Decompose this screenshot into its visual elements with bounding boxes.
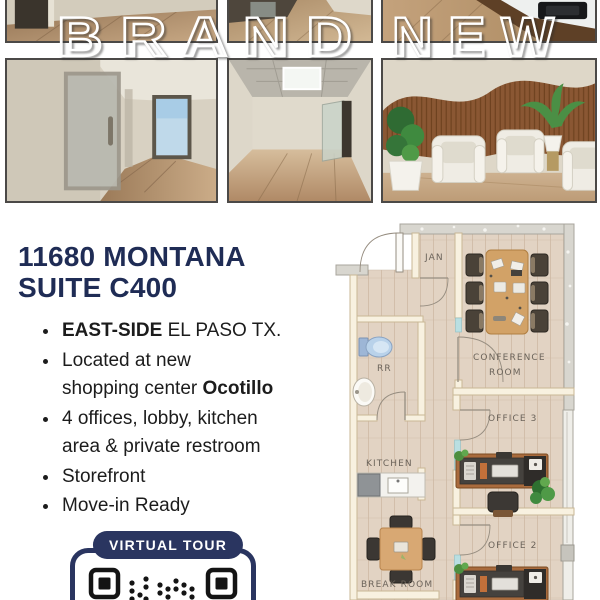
label-jan: JAN [424, 253, 444, 263]
flyer-page: B R A N D N E W 11680 MONTANA SUITE C400… [0, 0, 600, 600]
label-conference-2: ROOM [489, 368, 522, 378]
label-kitchen: KITCHEN [366, 459, 413, 469]
listing-details: 11680 MONTANA SUITE C400 EAST-SIDE EL PA… [18, 241, 323, 522]
bullet-layout-line1: 4 offices, lobby, kitchen [62, 408, 258, 429]
photo-office-room [227, 58, 373, 203]
qr-dots [129, 576, 194, 600]
photo-hall-glass-door [227, 0, 373, 43]
label-conference-1: CONFERENCE [473, 353, 546, 363]
toilet-icon [359, 337, 392, 357]
bullet-shopping-bold: Ocotillo [203, 378, 274, 399]
label-break-room: BREAK ROOM [361, 580, 433, 590]
bullet-shopping-line1: Located at new [62, 350, 191, 371]
photo-room-corner [5, 0, 218, 43]
bullet-location-rest: EL PASO TX. [162, 320, 281, 341]
armchair [563, 142, 595, 191]
conference-table [466, 250, 548, 334]
qr-code [88, 567, 238, 600]
storefront-glass [563, 410, 573, 545]
bullet-move-in: Move-in Ready [60, 492, 323, 521]
title-line-1: 11680 MONTANA [18, 241, 323, 272]
photo-hallway-image [7, 60, 216, 201]
bullet-location: EAST-SIDE EL PASO TX. [60, 317, 323, 346]
photo-lobby-image [383, 60, 595, 201]
photo-office-room-image [229, 60, 371, 201]
kitchen-counter [357, 473, 425, 497]
photo-hallway [5, 58, 218, 203]
bullet-layout: 4 offices, lobby, kitchenarea & private … [60, 405, 323, 462]
sink-icon [353, 378, 375, 406]
label-office2: OFFICE 2 [488, 541, 537, 551]
armchair [432, 136, 485, 183]
bullet-storefront: Storefront [60, 463, 323, 492]
virtual-tour-badge: VIRTUAL TOUR [93, 531, 243, 559]
floor-plan: JAN RR KITCHEN BREAK ROOM CONFERENCE ROO… [330, 220, 600, 600]
bullet-shopping-center: Located at newshopping center Ocotillo [60, 347, 323, 404]
bullet-shopping-line2: shopping center [62, 378, 203, 399]
title-line-2: SUITE C400 [18, 272, 323, 303]
feature-list: EAST-SIDE EL PASO TX. Located at newshop… [18, 317, 323, 521]
bullet-layout-line2: area & private restroom [62, 436, 261, 457]
entry-door-leaf [396, 233, 403, 272]
photo-kitchen-counter [381, 0, 597, 43]
label-rr: RR [377, 364, 392, 374]
photo-kitchen-counter-image [383, 0, 595, 41]
stove-icon [358, 474, 380, 496]
photo-hall-glass-door-image [229, 0, 371, 41]
label-office3: OFFICE 3 [488, 414, 537, 424]
photo-lobby [381, 58, 597, 203]
photo-room-corner-image [7, 0, 216, 41]
office2-desk [454, 563, 548, 600]
page-title: 11680 MONTANA SUITE C400 [18, 241, 323, 303]
armchair [497, 130, 544, 173]
bullet-location-bold: EAST-SIDE [62, 320, 162, 341]
